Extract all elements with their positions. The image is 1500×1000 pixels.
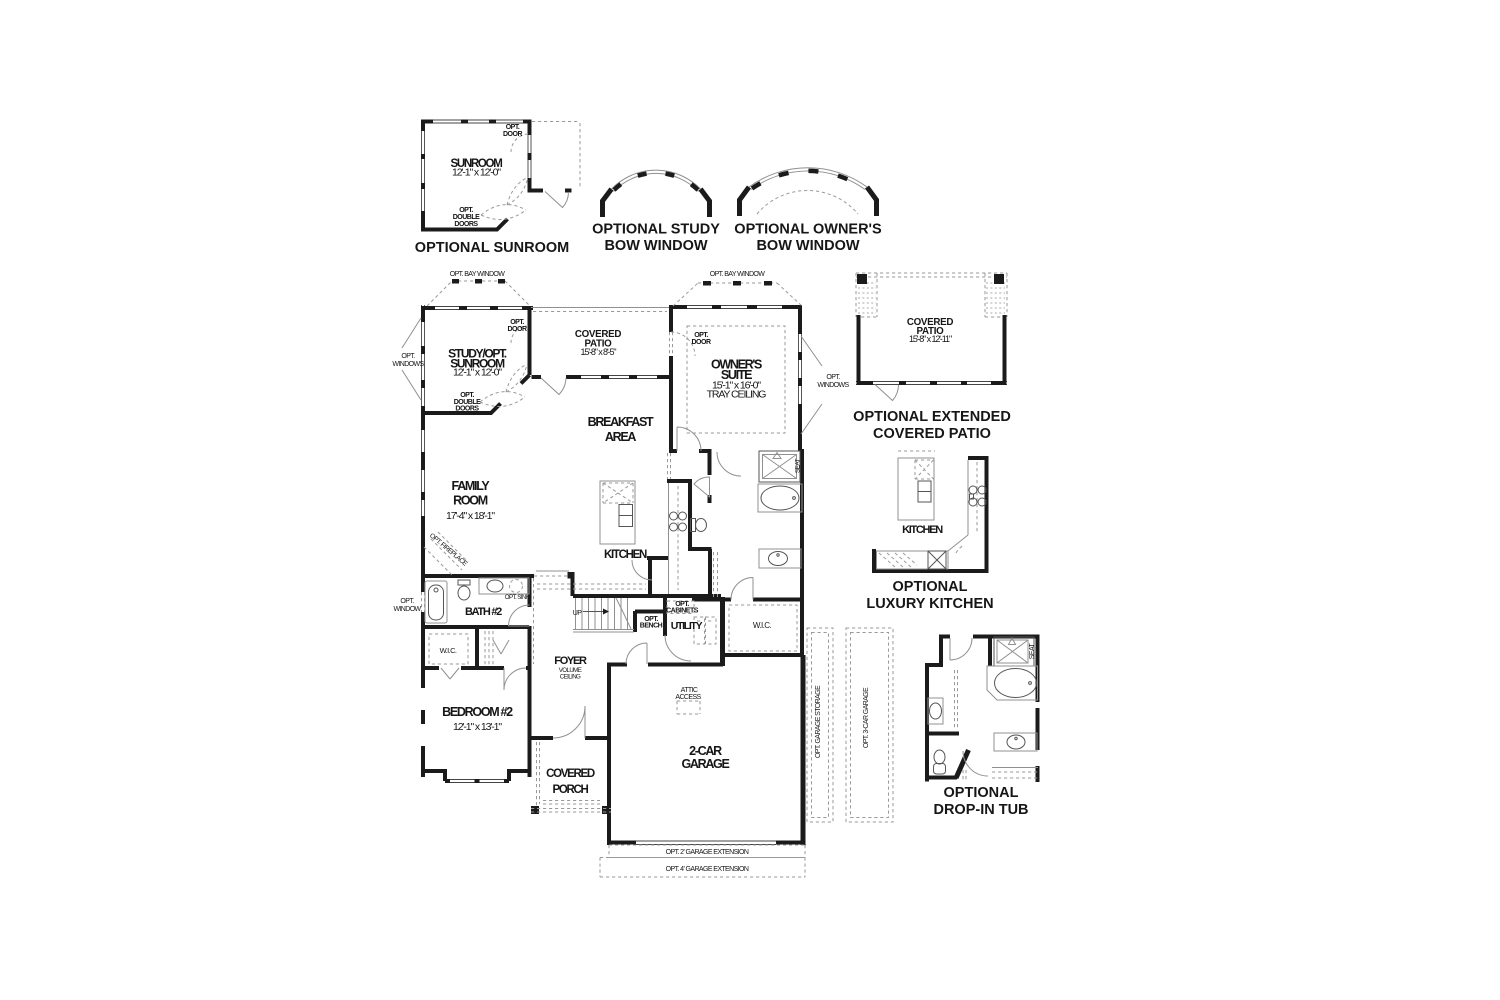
svg-text:DOOR: DOOR (692, 339, 711, 346)
svg-text:15'-8" x 12'-11": 15'-8" x 12'-11" (909, 334, 952, 344)
svg-text:FAMILY: FAMILY (452, 479, 491, 493)
svg-text:W.I.C.: W.I.C. (753, 621, 772, 630)
svg-text:OPT. 3-CAR GARAGE: OPT. 3-CAR GARAGE (863, 687, 870, 748)
svg-text:DROP-IN TUB: DROP-IN TUB (933, 802, 1028, 818)
svg-text:OPTIONAL: OPTIONAL (893, 579, 968, 595)
svg-text:CABINETS: CABINETS (666, 608, 699, 615)
svg-text:12'-1" x 13'-1": 12'-1" x 13'-1" (453, 721, 502, 733)
svg-text:SEAT: SEAT (795, 458, 802, 473)
svg-text:OPT. BAY WINDOW: OPT. BAY WINDOW (710, 271, 766, 278)
svg-text:OPT.: OPT. (459, 207, 473, 214)
svg-text:12'-1" x 12'-0": 12'-1" x 12'-0" (453, 367, 502, 379)
svg-text:OPTIONAL SUNROOM: OPTIONAL SUNROOM (415, 240, 569, 256)
svg-text:OPT.: OPT. (400, 598, 414, 605)
svg-text:BREAKFAST: BREAKFAST (588, 415, 654, 429)
svg-text:DOORS: DOORS (455, 406, 479, 413)
svg-text:OPTIONAL STUDY: OPTIONAL STUDY (592, 222, 720, 238)
svg-text:WINDOWS: WINDOWS (392, 361, 424, 368)
svg-text:OPT. 2' GARAGE EXTENSION: OPT. 2' GARAGE EXTENSION (666, 849, 749, 856)
svg-text:UP: UP (573, 610, 582, 617)
svg-text:OPT.: OPT. (401, 353, 415, 360)
svg-text:OPT.: OPT. (510, 319, 524, 326)
svg-text:KITCHEN: KITCHEN (902, 524, 943, 536)
svg-text:BOW WINDOW: BOW WINDOW (604, 238, 707, 254)
svg-text:SEAT: SEAT (1029, 643, 1036, 660)
svg-text:DOOR: DOOR (503, 131, 522, 138)
svg-text:OPTIONAL EXTENDED: OPTIONAL EXTENDED (853, 409, 1011, 425)
svg-text:15'-8" x 8'-5": 15'-8" x 8'-5" (581, 347, 617, 357)
svg-text:ROOM: ROOM (453, 494, 488, 508)
svg-text:DOOR: DOOR (508, 326, 527, 333)
svg-text:CEILING: CEILING (560, 674, 581, 681)
svg-text:OPTIONAL OWNER'S: OPTIONAL OWNER'S (734, 222, 882, 238)
svg-text:17'-4" x 18'-1": 17'-4" x 18'-1" (446, 510, 495, 522)
svg-text:BATH #2: BATH #2 (465, 606, 502, 618)
svg-text:COVERED PATIO: COVERED PATIO (873, 426, 991, 442)
svg-text:OPT. GARAGE STORAGE: OPT. GARAGE STORAGE (815, 685, 822, 758)
svg-text:ATTIC: ATTIC (681, 687, 698, 694)
svg-text:ACCESS: ACCESS (675, 694, 701, 701)
svg-text:GARAGE: GARAGE (681, 757, 729, 771)
svg-text:DOORS: DOORS (454, 221, 478, 228)
svg-text:TRAY CEILING: TRAY CEILING (707, 389, 767, 401)
svg-text:OPTIONAL: OPTIONAL (944, 785, 1019, 801)
svg-text:W.I.C.: W.I.C. (440, 646, 457, 655)
svg-text:WINDOW: WINDOW (393, 606, 421, 613)
svg-text:UTILITY: UTILITY (671, 620, 703, 632)
svg-text:OPT.: OPT. (506, 124, 520, 131)
svg-text:WINDOWS: WINDOWS (817, 382, 849, 389)
svg-text:12'-1" x 12'-0": 12'-1" x 12'-0" (452, 167, 501, 179)
svg-text:OPT. SINK: OPT. SINK (505, 594, 531, 601)
svg-text:OPT. 4' GARAGE EXTENSION: OPT. 4' GARAGE EXTENSION (666, 866, 749, 873)
svg-text:OPT.: OPT. (460, 392, 474, 399)
svg-text:2-CAR: 2-CAR (689, 744, 722, 758)
svg-text:BENCH: BENCH (640, 623, 663, 630)
svg-text:BEDROOM #2: BEDROOM #2 (442, 705, 513, 719)
svg-text:AREA: AREA (605, 430, 636, 444)
svg-text:COVERED: COVERED (546, 768, 595, 780)
svg-text:OPT.: OPT. (694, 332, 708, 339)
svg-text:PORCH: PORCH (552, 784, 588, 796)
svg-text:FOYER: FOYER (554, 655, 587, 667)
svg-text:DOUBLE: DOUBLE (453, 214, 480, 221)
svg-text:KITCHEN: KITCHEN (604, 549, 647, 561)
svg-text:LUXURY KITCHEN: LUXURY KITCHEN (866, 596, 993, 612)
svg-text:BOW WINDOW: BOW WINDOW (756, 238, 859, 254)
svg-text:OPT. BAY WINDOW: OPT. BAY WINDOW (450, 271, 506, 278)
svg-text:OPT.: OPT. (826, 374, 840, 381)
